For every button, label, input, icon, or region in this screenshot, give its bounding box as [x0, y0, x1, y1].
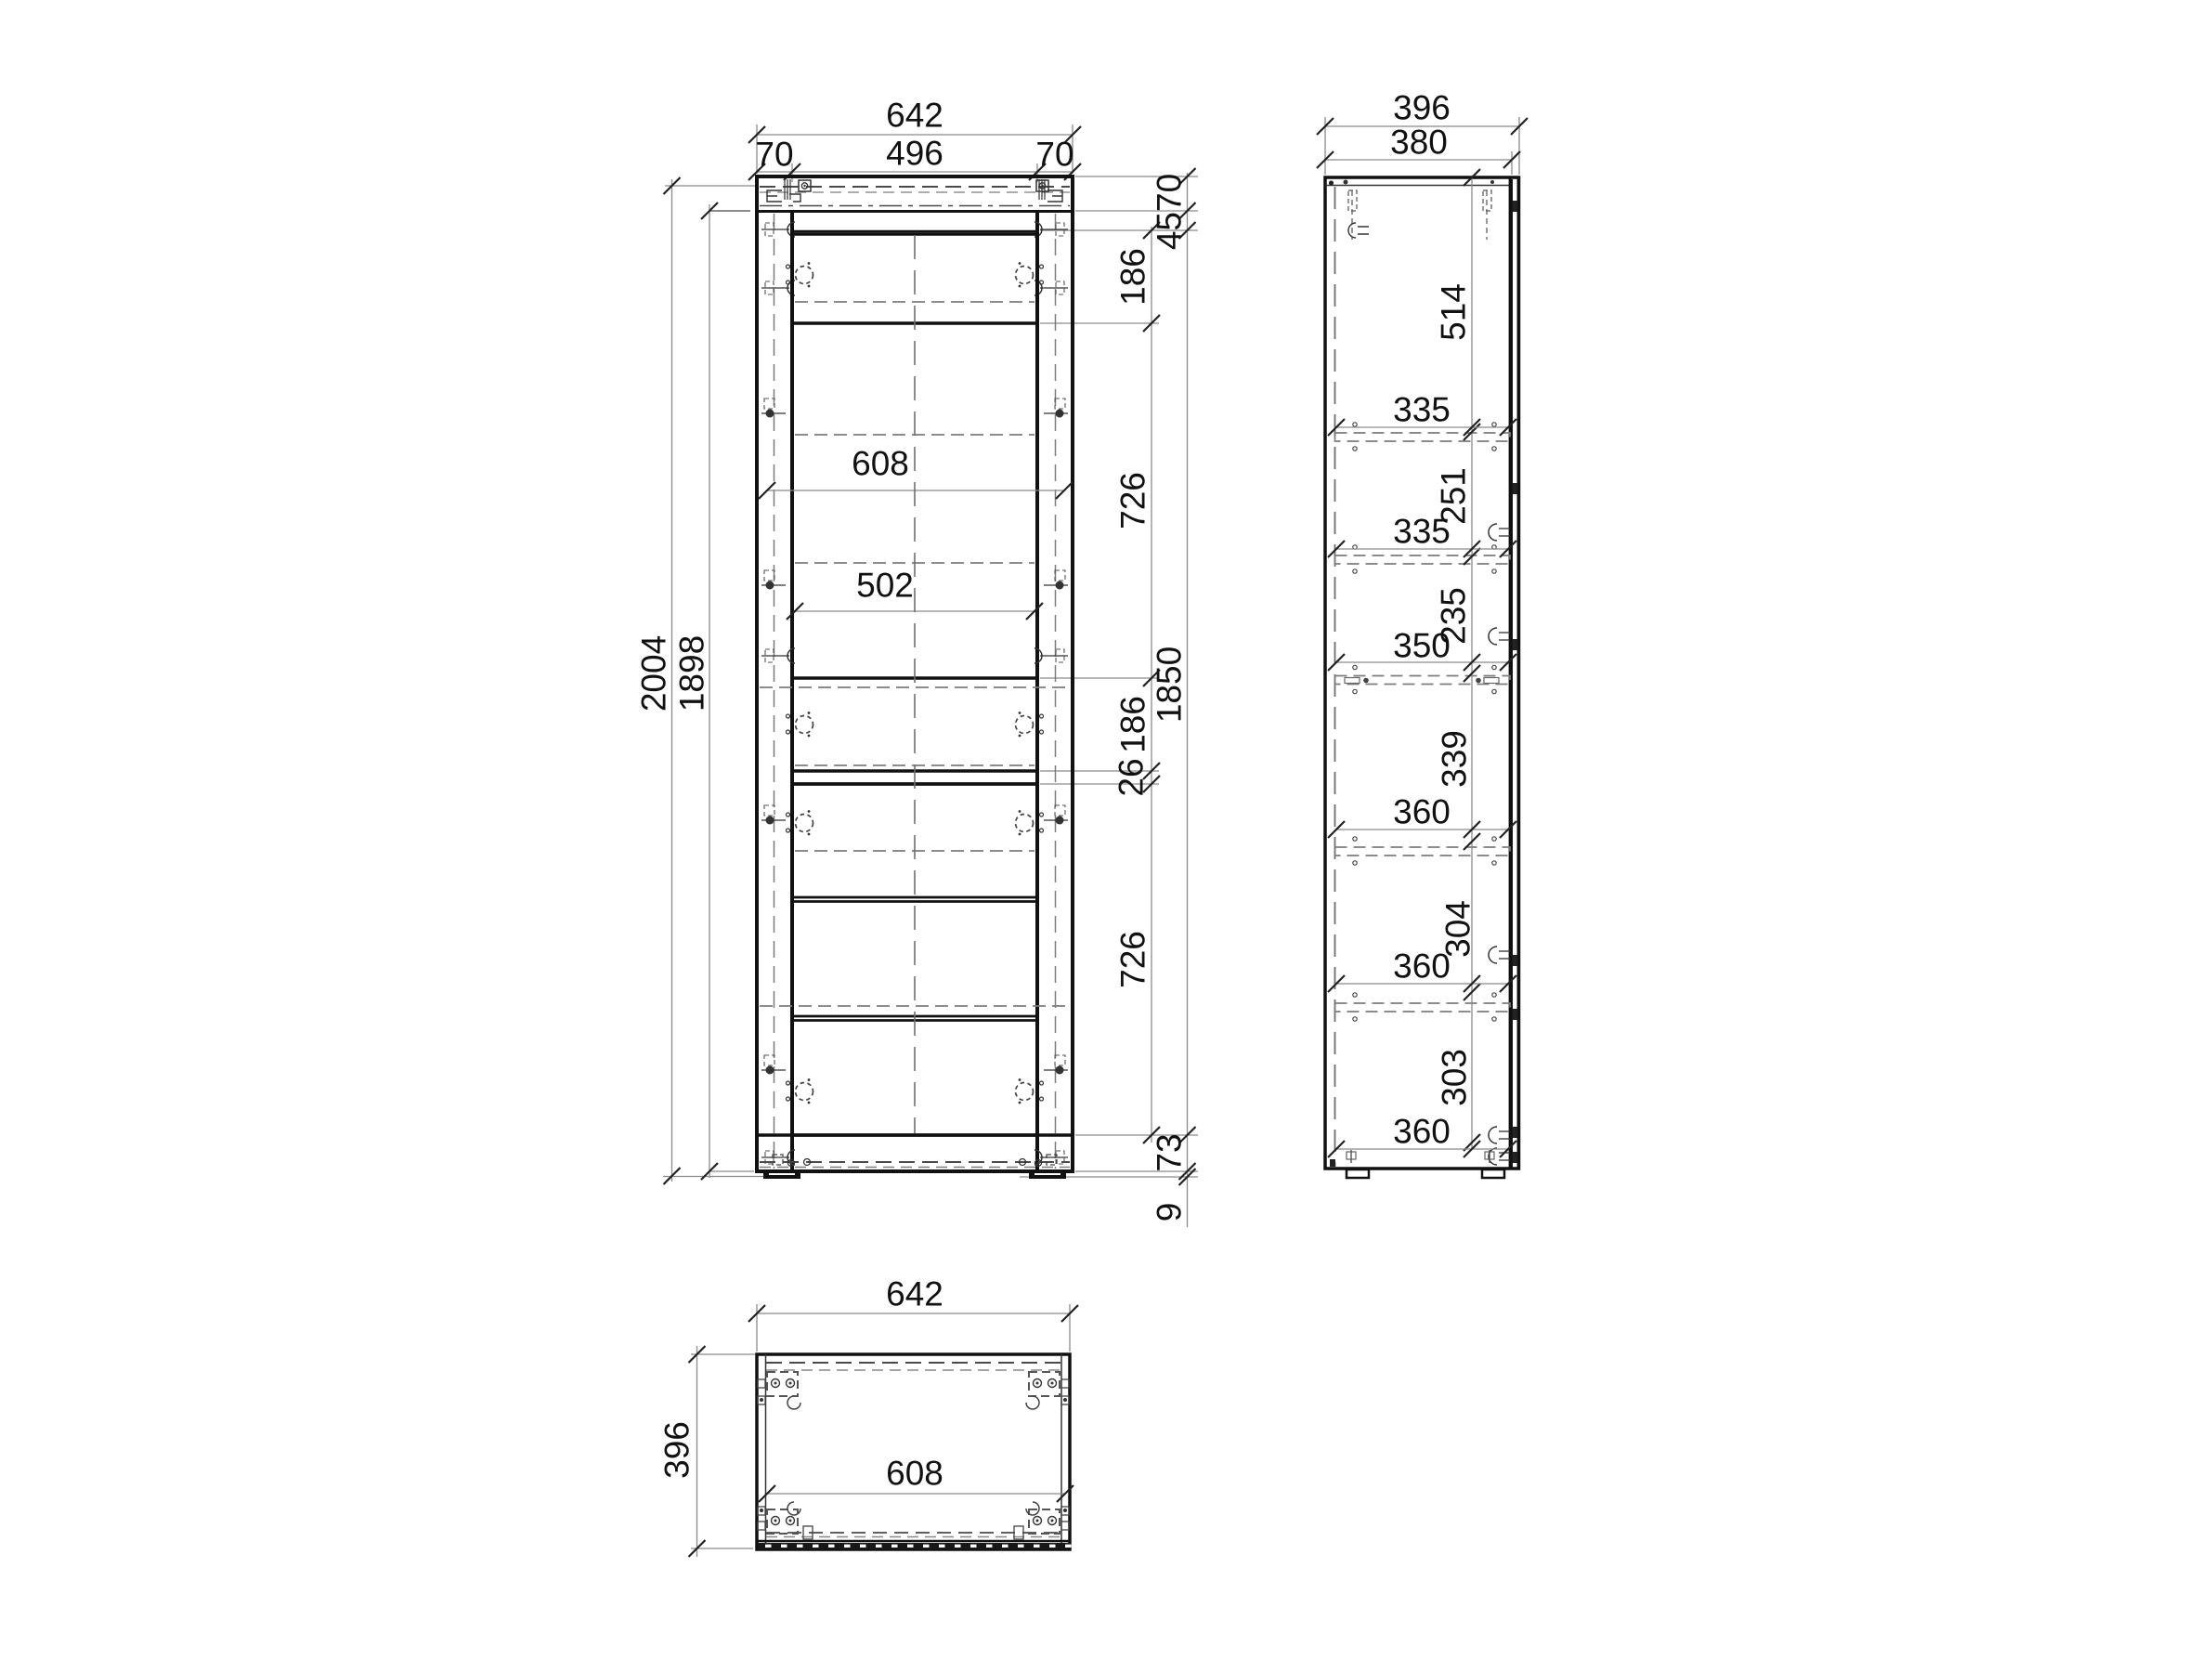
svg-text:380: 380: [1390, 124, 1448, 162]
svg-text:70: 70: [755, 136, 793, 174]
svg-text:396: 396: [1393, 89, 1451, 127]
svg-text:1850: 1850: [1151, 647, 1189, 723]
svg-text:514: 514: [1435, 283, 1473, 341]
svg-text:396: 396: [658, 1421, 696, 1479]
svg-text:608: 608: [886, 1455, 943, 1493]
svg-text:360: 360: [1393, 1113, 1451, 1151]
svg-text:186: 186: [1114, 248, 1152, 306]
svg-text:26: 26: [1113, 758, 1151, 796]
svg-text:642: 642: [886, 1275, 943, 1313]
svg-text:335: 335: [1393, 513, 1451, 551]
svg-text:186: 186: [1114, 696, 1152, 753]
svg-text:360: 360: [1393, 793, 1451, 831]
svg-text:350: 350: [1393, 627, 1451, 665]
svg-text:502: 502: [856, 567, 914, 605]
svg-text:2004: 2004: [635, 635, 673, 712]
svg-text:360: 360: [1393, 947, 1451, 986]
svg-text:70: 70: [1035, 136, 1073, 174]
svg-text:303: 303: [1436, 1049, 1474, 1106]
svg-text:9: 9: [1151, 1203, 1189, 1222]
svg-text:608: 608: [852, 445, 909, 483]
svg-text:726: 726: [1114, 472, 1152, 529]
svg-text:4570: 4570: [1151, 174, 1189, 250]
svg-text:339: 339: [1436, 730, 1474, 788]
svg-text:335: 335: [1393, 391, 1451, 429]
svg-text:496: 496: [886, 135, 943, 173]
svg-text:1898: 1898: [673, 635, 711, 712]
svg-text:726: 726: [1114, 931, 1152, 988]
svg-text:642: 642: [886, 97, 943, 135]
svg-text:73: 73: [1151, 1133, 1189, 1171]
